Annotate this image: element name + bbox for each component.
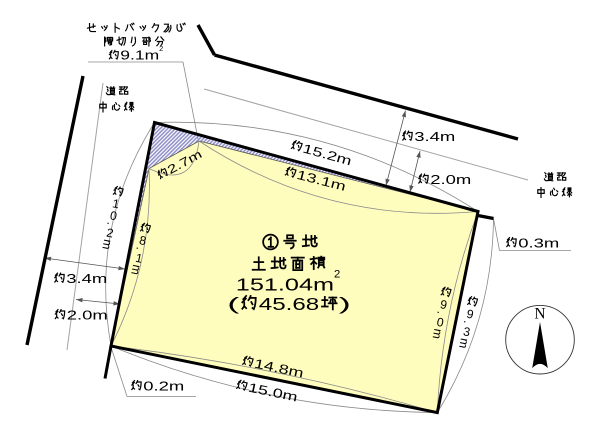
svg-text:2: 2 <box>159 44 163 53</box>
svg-text:m: m <box>99 238 115 251</box>
svg-text:m: m <box>456 337 472 350</box>
svg-text:): ) <box>339 294 351 314</box>
svg-text:2: 2 <box>334 269 340 281</box>
svg-text:3.4m: 3.4m <box>66 271 107 286</box>
svg-text:3.4m: 3.4m <box>414 129 455 144</box>
svg-text:N: N <box>534 305 545 322</box>
svg-text:151.04m: 151.04m <box>236 275 334 295</box>
svg-text:2.0m: 2.0m <box>430 172 471 187</box>
svg-text:(: ( <box>227 294 240 314</box>
svg-text:9.1m: 9.1m <box>120 49 159 63</box>
svg-text:0.3m: 0.3m <box>518 235 559 250</box>
svg-text:45.68: 45.68 <box>259 294 319 314</box>
svg-text:3: 3 <box>462 324 472 339</box>
svg-text:2.0m: 2.0m <box>67 307 108 322</box>
svg-text:0.2m: 0.2m <box>143 378 184 393</box>
